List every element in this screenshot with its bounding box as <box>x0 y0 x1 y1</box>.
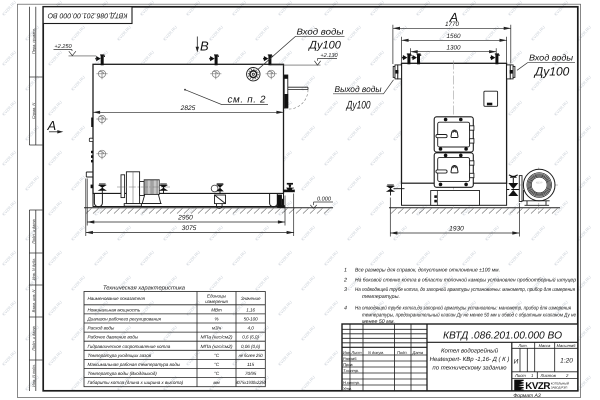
svg-text:мм: мм <box>213 380 220 385</box>
svg-text:1: 1 <box>531 373 533 378</box>
svg-text:1560: 1560 <box>446 33 461 40</box>
svg-text:Диапазон рабочего регулировани: Диапазон рабочего регулирования <box>87 317 162 322</box>
svg-text:1: 1 <box>344 268 347 274</box>
svg-text:Подп.: Подп. <box>397 350 408 355</box>
svg-text:3075: 3075 <box>182 225 197 232</box>
svg-text:Выход воды: Выход воды <box>335 84 383 94</box>
svg-text:Масса: Масса <box>539 343 552 348</box>
svg-text:КВТД.086.201.00.000 ВО: КВТД.086.201.00.000 ВО <box>47 11 127 18</box>
svg-text:Листов: Листов <box>540 373 557 378</box>
svg-text:Котел водогрейный: Котел водогрейный <box>441 347 499 354</box>
svg-text:Масштаб: Масштаб <box>557 343 576 348</box>
svg-text:Номинальная мощность: Номинальная мощность <box>88 307 141 312</box>
svg-text:КВЗР: КВЗР <box>536 181 543 184</box>
svg-text:Гидравлическое сопротивление к: Гидравлическое сопротивление котла <box>88 344 171 349</box>
svg-text:Ду100: Ду100 <box>533 65 570 79</box>
svg-text:измерения: измерения <box>205 299 228 304</box>
svg-text:МПа (кгс/см2): МПа (кгс/см2) <box>201 335 234 340</box>
svg-text:+2.250: +2.250 <box>54 44 72 50</box>
svg-text:Максимальная рабочая температу: Максимальная рабочая температура воды <box>88 362 181 367</box>
svg-text:Лит.: Лит. <box>517 343 527 348</box>
svg-text:2950: 2950 <box>177 215 193 222</box>
svg-text:Наименование показателя: Наименование показателя <box>88 296 146 301</box>
svg-text:температуры.: температуры. <box>362 294 400 300</box>
svg-text:Инв. N дубл.: Инв. N дубл. <box>31 258 36 281</box>
svg-text:Расход воды: Расход воды <box>88 326 115 331</box>
svg-text:по техническому заданию: по техническому заданию <box>432 364 507 371</box>
svg-text:На боковой стенке котла в обла: На боковой стенке котла в области топочн… <box>355 277 576 283</box>
svg-text:Подп. и дата: Подп. и дата <box>31 325 36 350</box>
svg-text:+2.130: +2.130 <box>320 53 338 59</box>
svg-text:1,16: 1,16 <box>246 307 255 312</box>
svg-text:0.000: 0.000 <box>317 196 332 202</box>
svg-text:Heatexpert- КВр -1,16- Д ( К ): Heatexpert- КВр -1,16- Д ( К ) <box>430 356 510 363</box>
svg-text:4,0: 4,0 <box>247 326 254 331</box>
svg-text:Лист: Лист <box>514 373 526 378</box>
svg-text:KVZR: KVZR <box>525 381 550 392</box>
svg-text:Рабочее давление воды: Рабочее давление воды <box>88 335 139 340</box>
svg-text:В: В <box>200 39 209 54</box>
svg-text:Температура уходящих газов: Температура уходящих газов <box>88 353 152 358</box>
svg-text:Ду100: Ду100 <box>345 100 371 112</box>
svg-text:0,06 (0,6): 0,06 (0,6) <box>241 344 261 349</box>
svg-text:Вход воды: Вход воды <box>529 53 574 63</box>
svg-text:м3/ч: м3/ч <box>212 326 222 331</box>
svg-text:Все размеры для справок, допус: Все размеры для справок, допустимое откл… <box>355 268 500 274</box>
svg-text:Справ. N: Справ. N <box>31 103 36 119</box>
svg-text:см. п. 2: см. п. 2 <box>228 95 267 106</box>
svg-text:3: 3 <box>344 287 347 293</box>
svg-text:50-100: 50-100 <box>244 317 258 322</box>
svg-text:Значение: Значение <box>241 296 261 301</box>
svg-text:°С: °С <box>214 353 220 358</box>
svg-text:2: 2 <box>343 277 347 283</box>
svg-text:1930: 1930 <box>449 226 464 233</box>
svg-text:Вход воды: Вход воды <box>297 26 345 36</box>
svg-text:2825: 2825 <box>180 105 196 112</box>
svg-text:На подводящей трубе котла, д: На подводящей трубе котла, до запорной а… <box>355 287 575 293</box>
svg-text:3075х1930х2250: 3075х1930х2250 <box>235 380 266 385</box>
svg-text:Н.контр.: Н.контр. <box>343 380 360 385</box>
svg-text:Дата: Дата <box>412 350 424 355</box>
svg-text:°С: °С <box>214 362 220 367</box>
svg-text:1300: 1300 <box>446 45 461 52</box>
svg-text:4: 4 <box>344 306 347 312</box>
svg-text:1:20: 1:20 <box>560 358 573 365</box>
svg-text:И: И <box>514 359 519 366</box>
svg-text:Взам. инв. N: Взам. инв. N <box>31 289 36 312</box>
svg-text:%: % <box>214 317 218 322</box>
svg-text:МПа (кгс/см2): МПа (кгс/см2) <box>201 344 234 349</box>
svg-text:0,6 (6,0): 0,6 (6,0) <box>242 335 259 340</box>
svg-text:А: А <box>47 118 57 133</box>
svg-text:°С: °С <box>214 371 220 376</box>
svg-text:Перв. примен.: Перв. примен. <box>31 28 36 54</box>
svg-text:Изм.Лист: Изм.Лист <box>343 350 362 355</box>
svg-text:температуры, предохранительный: температуры, предохранительный клапан Ду… <box>362 312 576 318</box>
svg-text:Техническая характеристика: Техническая характеристика <box>103 286 186 292</box>
svg-text:Т.контр.: Т.контр. <box>343 368 359 373</box>
svg-text:КВТД .086.201.00.000 ВО: КВТД .086.201.00.000 ВО <box>443 330 562 341</box>
svg-text:Подп. и дата: Подп. и дата <box>31 218 36 243</box>
svg-text:На отводящей трубе котла,до за: На отводящей трубе котла,до запорной арм… <box>355 306 571 312</box>
svg-text:Инв. N подл.: Инв. N подл. <box>31 364 36 387</box>
svg-text:1770: 1770 <box>445 21 460 28</box>
svg-text:Ду100: Ду100 <box>307 40 342 52</box>
svg-text:Утв.: Утв. <box>343 386 352 391</box>
svg-text:115: 115 <box>247 362 255 367</box>
svg-text:Пров.: Пров. <box>343 362 354 367</box>
svg-text:не более 250: не более 250 <box>239 353 263 358</box>
svg-text:Разраб.: Разраб. <box>343 356 357 361</box>
svg-text:Габариты котла (длина х ширина: Габариты котла (длина х ширина х высота) <box>88 380 184 385</box>
svg-text:ЗАВОД РЭП: ЗАВОД РЭП <box>551 386 568 390</box>
svg-text:МВт: МВт <box>211 307 222 312</box>
svg-text:70/95: 70/95 <box>245 371 257 376</box>
svg-text:Формат А3: Формат А3 <box>513 393 541 399</box>
svg-text:N докум.: N докум. <box>368 350 384 355</box>
svg-text:Температура воды (Вход/выход): Температура воды (Вход/выход) <box>88 371 158 376</box>
svg-text:Единицы: Единицы <box>207 293 227 298</box>
